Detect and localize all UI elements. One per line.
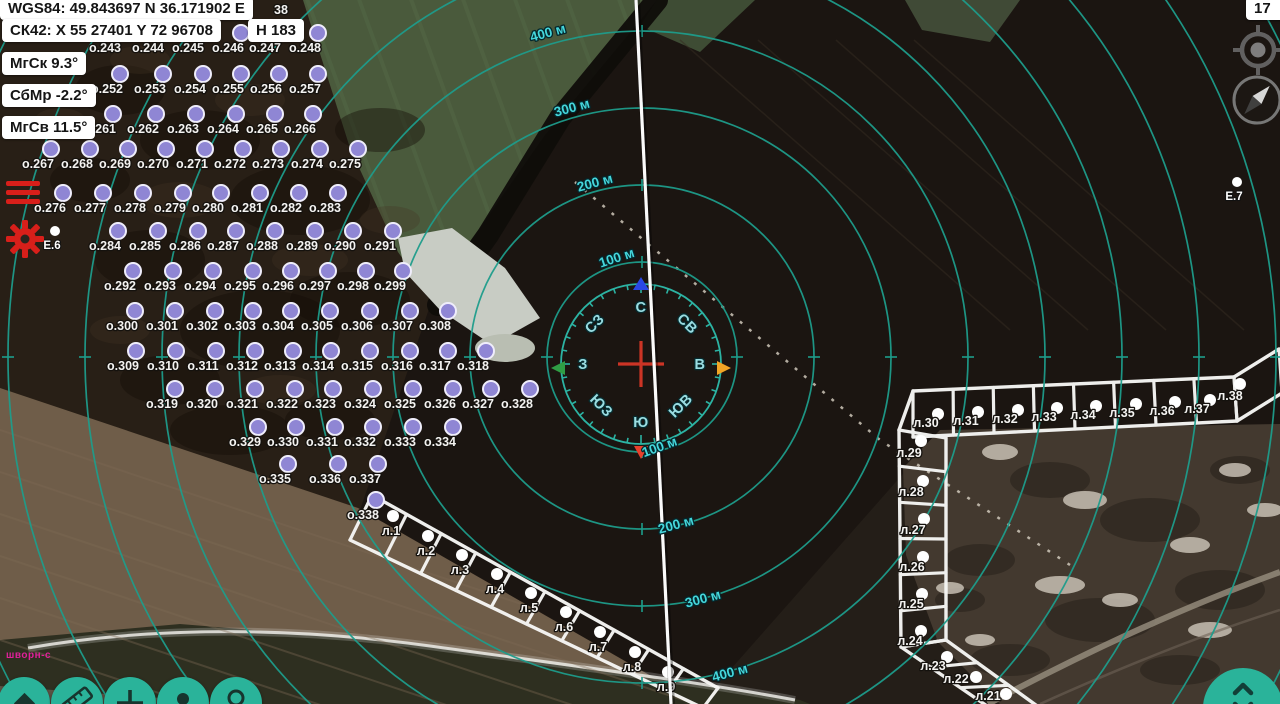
grid-point[interactable]	[522, 381, 538, 397]
svg-text:о.324: о.324	[344, 397, 376, 411]
grid-point[interactable]	[322, 303, 338, 319]
grid-point[interactable]	[267, 106, 283, 122]
trench-point[interactable]	[456, 549, 468, 561]
reference-point[interactable]	[1232, 177, 1242, 187]
svg-text:о.264: о.264	[207, 122, 239, 136]
grid-point[interactable]	[310, 66, 326, 82]
grid-point[interactable]	[167, 303, 183, 319]
svg-text:о.325: о.325	[384, 397, 416, 411]
svg-text:л.37: л.37	[1184, 402, 1209, 416]
grid-point[interactable]	[188, 106, 204, 122]
grid-point[interactable]	[175, 185, 191, 201]
grid-point[interactable]	[125, 263, 141, 279]
reference-point[interactable]	[50, 226, 60, 236]
grid-point[interactable]	[207, 381, 223, 397]
grid-point[interactable]	[43, 141, 59, 157]
svg-text:о.280: о.280	[192, 201, 224, 215]
person-icon	[210, 677, 262, 704]
grid-point[interactable]	[288, 419, 304, 435]
svg-text:о.326: о.326	[424, 397, 456, 411]
grid-point[interactable]	[135, 185, 151, 201]
grid-point[interactable]	[252, 185, 268, 201]
settings-button[interactable]	[4, 218, 46, 265]
grid-point[interactable]	[273, 141, 289, 157]
svg-text:л.23: л.23	[920, 659, 945, 673]
svg-text:л.21: л.21	[975, 689, 1000, 703]
svg-text:о.334: о.334	[424, 435, 456, 449]
svg-text:л.35: л.35	[1109, 406, 1134, 420]
grid-point[interactable]	[150, 223, 166, 239]
height-box[interactable]: Н 183	[248, 19, 304, 42]
grid-point[interactable]	[402, 303, 418, 319]
svg-text:л.6: л.6	[555, 620, 573, 634]
svg-text:о.331: о.331	[306, 435, 338, 449]
grid-point[interactable]	[233, 25, 249, 41]
plus-icon	[104, 677, 156, 704]
grid-point[interactable]	[402, 343, 418, 359]
svg-text:о.293: о.293	[144, 279, 176, 293]
svg-text:о.308: о.308	[419, 319, 451, 333]
compass-icon	[1229, 72, 1280, 128]
grid-point[interactable]	[235, 141, 251, 157]
svg-text:о.278: о.278	[114, 201, 146, 215]
svg-text:л.32: л.32	[992, 412, 1017, 426]
grid-point[interactable]	[325, 381, 341, 397]
grid-point[interactable]	[330, 456, 346, 472]
svg-text:о.279: о.279	[154, 201, 186, 215]
collapse-expand-icon	[1203, 668, 1280, 704]
grid-point[interactable]	[327, 419, 343, 435]
ck42-coords-box[interactable]: СК42: X 55 27401 Y 72 96708	[2, 19, 221, 42]
trench-point[interactable]	[970, 671, 982, 683]
svg-text:о.246: о.246	[212, 41, 244, 55]
grid-point[interactable]	[365, 419, 381, 435]
grid-point[interactable]	[405, 419, 421, 435]
svg-text:о.309: о.309	[107, 359, 139, 373]
trench-point[interactable]	[629, 646, 641, 658]
svg-text:о.282: о.282	[270, 201, 302, 215]
svg-text:о.319: о.319	[146, 397, 178, 411]
grid-point[interactable]	[312, 141, 328, 157]
svg-text:о.270: о.270	[137, 157, 169, 171]
diamond-icon	[0, 677, 50, 704]
grid-point[interactable]	[330, 185, 346, 201]
svg-text:о.266: о.266	[284, 122, 316, 136]
gear-icon	[4, 218, 46, 260]
svg-text:о.248: о.248	[289, 41, 321, 55]
grid-point[interactable]	[228, 223, 244, 239]
grid-point[interactable]	[483, 381, 499, 397]
svg-text:л.24: л.24	[897, 634, 922, 648]
svg-text:о.316: о.316	[381, 359, 413, 373]
declination-box[interactable]: СбМр -2.2°	[2, 84, 96, 107]
trench-point[interactable]	[525, 587, 537, 599]
svg-text:о.336: о.336	[309, 472, 341, 486]
svg-text:о.318: о.318	[457, 359, 489, 373]
svg-text:о.262: о.262	[127, 122, 159, 136]
grid-point[interactable]	[233, 66, 249, 82]
grid-point[interactable]	[283, 263, 299, 279]
svg-text:о.269: о.269	[99, 157, 131, 171]
svg-text:о.272: о.272	[214, 157, 246, 171]
svg-text:о.294: о.294	[184, 279, 216, 293]
svg-text:о.321: о.321	[226, 397, 258, 411]
svg-text:о.315: о.315	[341, 359, 373, 373]
svg-text:о.299: о.299	[374, 279, 406, 293]
grid-point[interactable]	[370, 456, 386, 472]
svg-text:о.265: о.265	[246, 122, 278, 136]
svg-text:о.333: о.333	[384, 435, 416, 449]
svg-text:л.26: л.26	[899, 560, 924, 574]
grid-point[interactable]	[228, 106, 244, 122]
grid-point[interactable]	[345, 223, 361, 239]
grid-point[interactable]	[305, 106, 321, 122]
svg-text:л.34: л.34	[1070, 408, 1095, 422]
svg-text:о.305: о.305	[301, 319, 333, 333]
wgs84-coords-box[interactable]: WGS84: 49.843697 N 36.171902 E	[0, 0, 253, 20]
grid-point[interactable]	[110, 223, 126, 239]
svg-text:л.5: л.5	[520, 601, 538, 615]
svg-text:о.297: о.297	[299, 279, 331, 293]
trench-point[interactable]	[387, 510, 399, 522]
svg-text:о.303: о.303	[224, 319, 256, 333]
trench-point[interactable]	[1000, 688, 1012, 700]
svg-text:о.300: о.300	[106, 319, 138, 333]
grid-point[interactable]	[245, 263, 261, 279]
grid-point[interactable]	[368, 492, 384, 508]
panel-toggle-button[interactable]	[1203, 668, 1280, 704]
svg-text:о.288: о.288	[246, 239, 278, 253]
svg-text:л.38: л.38	[1217, 389, 1242, 403]
grid-point[interactable]	[168, 343, 184, 359]
svg-text:л.1: л.1	[382, 524, 400, 538]
svg-text:л.31: л.31	[953, 414, 978, 428]
svg-text:о.323: о.323	[304, 397, 336, 411]
svg-text:л.2: л.2	[417, 544, 435, 558]
grid-point[interactable]	[285, 343, 301, 359]
svg-text:л.36: л.36	[1149, 404, 1174, 418]
svg-text:В: В	[695, 357, 706, 373]
svg-text:о.307: о.307	[381, 319, 413, 333]
svg-text:о.277: о.277	[74, 201, 106, 215]
svg-text:о.284: о.284	[89, 239, 121, 253]
svg-text:о.302: о.302	[186, 319, 218, 333]
svg-text:38: 38	[274, 3, 288, 17]
svg-text:л.27: л.27	[900, 523, 925, 537]
svg-text:л.30: л.30	[913, 416, 938, 430]
svg-text:З: З	[578, 357, 588, 373]
svg-text:о.252: о.252	[91, 82, 123, 96]
svg-text:о.327: о.327	[462, 397, 494, 411]
grid-point[interactable]	[320, 263, 336, 279]
svg-text:о.330: о.330	[267, 435, 299, 449]
svg-text:о.290: о.290	[324, 239, 356, 253]
grid-point[interactable]	[95, 185, 111, 201]
grid-point[interactable]	[287, 381, 303, 397]
svg-text:л.28: л.28	[898, 485, 923, 499]
measure-button[interactable]	[51, 677, 103, 704]
svg-text:о.317: о.317	[419, 359, 451, 373]
grid-point[interactable]	[365, 381, 381, 397]
grid-point[interactable]	[323, 343, 339, 359]
add-button[interactable]	[104, 677, 156, 704]
grid-point[interactable]	[358, 263, 374, 279]
svg-text:о.311: о.311	[187, 359, 218, 373]
trench-point[interactable]	[491, 568, 503, 580]
grid-point[interactable]	[158, 141, 174, 157]
grid-point[interactable]	[405, 381, 421, 397]
svg-text:о.253: о.253	[134, 82, 166, 96]
user-note-label: шворн-с	[6, 650, 51, 661]
svg-text:о.301: о.301	[146, 319, 178, 333]
svg-text:л.25: л.25	[898, 597, 923, 611]
grid-point[interactable]	[350, 141, 366, 157]
grid-point[interactable]	[307, 223, 323, 239]
grid-point[interactable]	[283, 303, 299, 319]
map-app: ССВВЮВЮЮЗЗСЗо.243о.244о.245о.246о.247о.2…	[0, 0, 1280, 704]
grid-point[interactable]	[165, 263, 181, 279]
grid-point[interactable]	[197, 141, 213, 157]
grid-point[interactable]	[445, 381, 461, 397]
grid-point[interactable]	[362, 303, 378, 319]
svg-text:о.263: о.263	[167, 122, 199, 136]
grid-point[interactable]	[128, 343, 144, 359]
svg-text:л.33: л.33	[1031, 410, 1056, 424]
svg-text:о.275: о.275	[329, 157, 361, 171]
svg-text:л.29: л.29	[896, 446, 921, 460]
grid-point[interactable]	[271, 66, 287, 82]
waypoint-button[interactable]	[0, 677, 50, 704]
svg-text:о.268: о.268	[61, 157, 93, 171]
grid-point[interactable]	[208, 343, 224, 359]
svg-text:о.257: о.257	[289, 82, 321, 96]
grid-point[interactable]	[247, 343, 263, 359]
svg-text:о.255: о.255	[212, 82, 244, 96]
svg-text:о.295: о.295	[224, 279, 256, 293]
clock-badge: 17	[1246, 0, 1280, 20]
svg-text:о.328: о.328	[501, 397, 533, 411]
svg-text:о.256: о.256	[250, 82, 282, 96]
svg-text:о.310: о.310	[147, 359, 179, 373]
trench-point[interactable]	[560, 606, 572, 618]
svg-text:о.286: о.286	[169, 239, 201, 253]
grid-point[interactable]	[213, 185, 229, 201]
svg-text:о.320: о.320	[186, 397, 218, 411]
svg-text:о.247: о.247	[249, 41, 281, 55]
svg-text:Е.7: Е.7	[1225, 191, 1242, 203]
svg-text:о.245: о.245	[172, 41, 204, 55]
svg-text:о.322: о.322	[266, 397, 298, 411]
svg-text:о.335: о.335	[259, 472, 291, 486]
marker-button[interactable]	[157, 677, 209, 704]
magnetic-light-box[interactable]: МгСв 11.5°	[2, 116, 95, 139]
grid-point[interactable]	[105, 106, 121, 122]
svg-text:о.313: о.313	[264, 359, 296, 373]
svg-text:о.287: о.287	[207, 239, 239, 253]
grid-point[interactable]	[478, 343, 494, 359]
svg-text:о.298: о.298	[337, 279, 369, 293]
grid-point[interactable]	[247, 381, 263, 397]
svg-text:о.314: о.314	[302, 359, 334, 373]
svg-text:о.338: о.338	[347, 508, 379, 522]
grid-point[interactable]	[440, 343, 456, 359]
grid-point[interactable]	[385, 223, 401, 239]
svg-text:о.274: о.274	[291, 157, 323, 171]
svg-text:о.273: о.273	[252, 157, 284, 171]
svg-text:о.289: о.289	[286, 239, 318, 253]
svg-text:л.7: л.7	[589, 640, 607, 654]
svg-text:о.306: о.306	[341, 319, 373, 333]
svg-text:о.283: о.283	[309, 201, 341, 215]
svg-text:о.254: о.254	[174, 82, 206, 96]
ruler-icon	[51, 677, 103, 704]
svg-text:о.267: о.267	[22, 157, 54, 171]
svg-text:л.8: л.8	[623, 660, 641, 674]
svg-text:о.292: о.292	[104, 279, 136, 293]
svg-text:о.304: о.304	[262, 319, 294, 333]
grid-point[interactable]	[280, 456, 296, 472]
grid-point[interactable]	[207, 303, 223, 319]
profile-button[interactable]	[210, 677, 262, 704]
svg-text:о.271: о.271	[176, 157, 208, 171]
grid-point[interactable]	[291, 185, 307, 201]
grid-point[interactable]	[395, 263, 411, 279]
trench-point[interactable]	[594, 626, 606, 638]
grid-point[interactable]	[267, 223, 283, 239]
grid-point[interactable]	[362, 343, 378, 359]
grid-point[interactable]	[205, 263, 221, 279]
grid-point[interactable]	[167, 381, 183, 397]
grid-point[interactable]	[82, 141, 98, 157]
grid-point[interactable]	[112, 66, 128, 82]
svg-text:о.332: о.332	[344, 435, 376, 449]
target-icon	[1230, 22, 1280, 78]
svg-text:о.244: о.244	[132, 41, 164, 55]
svg-text:о.312: о.312	[226, 359, 258, 373]
grid-point[interactable]	[190, 223, 206, 239]
grid-point[interactable]	[127, 303, 143, 319]
grid-point[interactable]	[250, 419, 266, 435]
grid-point[interactable]	[155, 66, 171, 82]
grid-point[interactable]	[55, 185, 71, 201]
magnetic-azimuth-box[interactable]: МгСк 9.3°	[2, 52, 86, 75]
compass-button[interactable]	[1229, 72, 1280, 133]
map-canvas[interactable]: ССВВЮВЮЮЗЗСЗо.243о.244о.245о.246о.247о.2…	[0, 0, 1280, 704]
grid-point[interactable]	[245, 303, 261, 319]
svg-text:о.285: о.285	[129, 239, 161, 253]
grid-point[interactable]	[120, 141, 136, 157]
svg-text:л.22: л.22	[943, 672, 968, 686]
grid-point[interactable]	[148, 106, 164, 122]
grid-point[interactable]	[440, 303, 456, 319]
svg-text:л.3: л.3	[451, 563, 469, 577]
grid-point[interactable]	[310, 25, 326, 41]
svg-text:Ю: Ю	[633, 415, 648, 431]
svg-text:о.291: о.291	[364, 239, 396, 253]
svg-text:С: С	[636, 300, 647, 316]
grid-point[interactable]	[445, 419, 461, 435]
svg-text:л.4: л.4	[486, 582, 504, 596]
svg-text:о.281: о.281	[231, 201, 263, 215]
svg-text:о.337: о.337	[349, 472, 381, 486]
svg-text:о.243: о.243	[89, 41, 121, 55]
svg-text:о.296: о.296	[262, 279, 294, 293]
svg-text:о.329: о.329	[229, 435, 261, 449]
pin-icon	[157, 677, 209, 704]
menu-icon[interactable]	[6, 181, 40, 208]
grid-point[interactable]	[195, 66, 211, 82]
trench-point[interactable]	[422, 530, 434, 542]
